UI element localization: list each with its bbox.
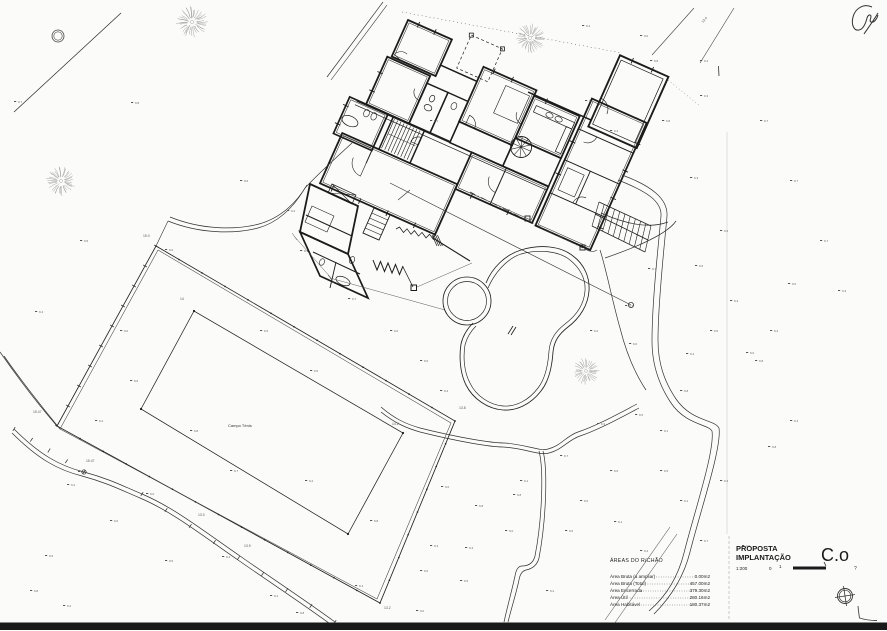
svg-text:9.8: 9.8	[194, 429, 199, 433]
svg-text:9.8: 9.8	[684, 389, 689, 393]
svg-text:ÁREAS DO R/CHÃO: ÁREAS DO R/CHÃO	[610, 557, 663, 564]
svg-text:9.0: 9.0	[82, 470, 87, 474]
svg-text:Área Útil: Área Útil	[610, 594, 628, 600]
svg-text:9.2: 9.2	[291, 209, 296, 213]
svg-text:9.3: 9.3	[629, 304, 634, 308]
svg-text:9.3: 9.3	[434, 544, 439, 548]
svg-text:9.2: 9.2	[614, 129, 619, 133]
svg-text:9.8: 9.8	[34, 589, 39, 593]
svg-text:9.2: 9.2	[550, 589, 555, 593]
svg-text:14.2: 14.2	[392, 422, 399, 426]
svg-text:13.0: 13.0	[198, 513, 205, 517]
svg-text:9.2: 9.2	[644, 549, 649, 553]
svg-text:9.8: 9.8	[517, 493, 522, 497]
svg-text:9.4: 9.4	[586, 24, 591, 28]
svg-text:9.1: 9.1	[304, 249, 309, 253]
svg-text:9.8: 9.8	[135, 101, 140, 105]
svg-text:13.9: 13.9	[244, 544, 251, 548]
svg-text:PROPOSTA: PROPOSTA	[736, 544, 778, 553]
svg-text:9.0: 9.0	[169, 248, 174, 252]
svg-text:13.2: 13.2	[384, 606, 391, 610]
svg-text:9.0: 9.0	[124, 329, 129, 333]
svg-text:15.47: 15.47	[86, 459, 95, 463]
svg-text:0.00m2: 0.00m2	[695, 574, 711, 579]
svg-text:9.5: 9.5	[724, 229, 729, 233]
svg-text:?: ?	[854, 566, 857, 572]
svg-text:C.o: C.o	[821, 545, 849, 565]
svg-text:9.5: 9.5	[264, 329, 269, 333]
svg-text:9.0: 9.0	[584, 499, 589, 503]
svg-text:9.7: 9.7	[764, 119, 769, 123]
svg-text:15.0: 15.0	[143, 234, 150, 238]
svg-text:9.0: 9.0	[750, 351, 755, 355]
svg-text:9.4: 9.4	[734, 299, 739, 303]
svg-text:9.6: 9.6	[569, 529, 574, 533]
svg-text:9.8: 9.8	[759, 359, 764, 363]
svg-text:280.16m2: 280.16m2	[690, 595, 711, 600]
svg-text:9.1: 9.1	[589, 99, 594, 103]
svg-text:9.5: 9.5	[464, 579, 469, 583]
svg-text:9.6: 9.6	[49, 554, 54, 558]
svg-text:9.5: 9.5	[169, 559, 174, 563]
svg-text:9.4: 9.4	[226, 555, 231, 559]
svg-text:9.1: 9.1	[664, 429, 669, 433]
svg-text:9.0: 9.0	[633, 342, 638, 346]
svg-text:9.4: 9.4	[359, 584, 364, 588]
svg-text:9.1: 9.1	[434, 119, 439, 123]
svg-text:457.00m2: 457.00m2	[690, 581, 711, 586]
svg-text:9.7: 9.7	[234, 469, 239, 473]
svg-text:9.5: 9.5	[664, 469, 669, 473]
svg-text:9.0: 9.0	[509, 529, 514, 533]
svg-text:9.1: 9.1	[524, 479, 529, 483]
svg-text:9.6: 9.6	[244, 179, 249, 183]
svg-text:9.3: 9.3	[601, 422, 606, 426]
svg-text:9.2: 9.2	[774, 329, 779, 333]
svg-text:9.8: 9.8	[654, 59, 659, 63]
svg-text:9.1: 9.1	[618, 520, 623, 524]
svg-text:9.7: 9.7	[652, 267, 657, 271]
svg-text:9.5: 9.5	[84, 239, 89, 243]
svg-text:9.2: 9.2	[594, 329, 599, 333]
svg-text:9.2: 9.2	[444, 389, 449, 393]
svg-text:379.30m2: 379.30m2	[690, 588, 711, 593]
svg-text:13.8: 13.8	[459, 406, 466, 410]
svg-text:9.8: 9.8	[300, 611, 305, 615]
svg-text:9.6: 9.6	[134, 379, 139, 383]
svg-text:9.5: 9.5	[639, 413, 644, 417]
svg-text:9.3: 9.3	[704, 94, 709, 98]
svg-text:9.4: 9.4	[469, 546, 474, 550]
svg-text:Campo Ténis: Campo Ténis	[228, 423, 252, 428]
svg-text:9.4: 9.4	[690, 352, 695, 356]
svg-text:9.7: 9.7	[824, 239, 829, 243]
svg-text:9.2: 9.2	[99, 419, 104, 423]
svg-text:9.8: 9.8	[666, 119, 671, 123]
svg-text:9.7: 9.7	[352, 297, 357, 301]
svg-text:9.1: 9.1	[274, 594, 279, 598]
svg-text:9.0: 9.0	[644, 34, 649, 38]
svg-text:9.4: 9.4	[794, 419, 799, 423]
svg-text:9.1: 9.1	[684, 499, 689, 503]
svg-text:180.37m2: 180.37m2	[690, 602, 711, 607]
svg-text:9.0: 9.0	[792, 282, 797, 286]
svg-text:9.3: 9.3	[842, 289, 847, 293]
svg-text:9.6: 9.6	[424, 359, 429, 363]
svg-text:14: 14	[180, 297, 184, 301]
svg-text:9.2: 9.2	[309, 479, 314, 483]
svg-text:9.7: 9.7	[704, 539, 709, 543]
svg-text:9.4: 9.4	[39, 310, 44, 314]
svg-text:9.2: 9.2	[71, 483, 76, 487]
svg-text:9.8: 9.8	[374, 519, 379, 523]
svg-text:9.8: 9.8	[479, 504, 484, 508]
svg-text:15.47: 15.47	[33, 410, 42, 414]
svg-text:9.2: 9.2	[67, 604, 72, 608]
svg-text:9.0: 9.0	[114, 519, 119, 523]
svg-text:9.4: 9.4	[704, 59, 709, 63]
svg-text:9.0: 9.0	[424, 569, 429, 573]
svg-text:9.0: 9.0	[150, 492, 155, 496]
svg-text:IMPLANTAÇÃO: IMPLANTAÇÃO	[736, 553, 791, 562]
svg-text:9.7: 9.7	[794, 179, 799, 183]
svg-text:9.3: 9.3	[724, 479, 729, 483]
svg-text:9.6: 9.6	[699, 264, 704, 268]
svg-text:9.7: 9.7	[18, 100, 23, 104]
svg-text:9.0: 9.0	[394, 329, 399, 333]
svg-text:9.8: 9.8	[772, 445, 777, 449]
svg-text:9.0: 9.0	[614, 469, 619, 473]
svg-text:9.3: 9.3	[694, 176, 699, 180]
svg-text:9.0: 9.0	[445, 485, 450, 489]
svg-text:1:200: 1:200	[736, 566, 748, 571]
svg-text:9.7: 9.7	[564, 454, 569, 458]
svg-text:9.5: 9.5	[714, 329, 719, 333]
svg-text:9.0: 9.0	[420, 609, 425, 613]
svg-text:9.5: 9.5	[314, 369, 319, 373]
